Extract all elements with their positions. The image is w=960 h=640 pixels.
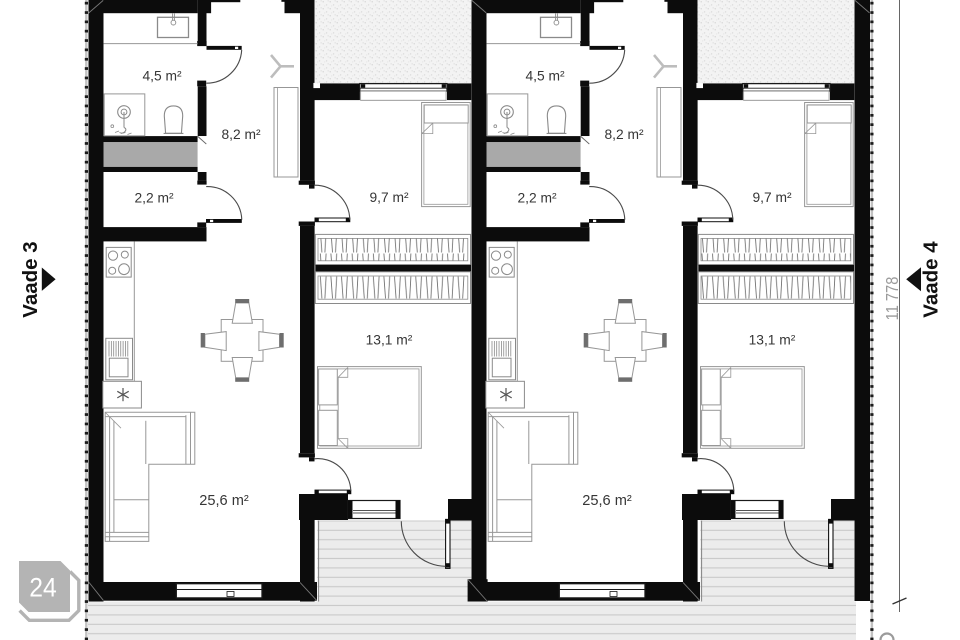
svg-text:Vaade 3: Vaade 3 (19, 241, 42, 317)
svg-text:2,2 m²: 2,2 m² (517, 190, 557, 205)
svg-text:25,6 m²: 25,6 m² (582, 493, 632, 509)
svg-text:8,2 m²: 8,2 m² (604, 127, 644, 142)
svg-text:13,1 m²: 13,1 m² (366, 333, 413, 348)
svg-text:8,2 m²: 8,2 m² (221, 127, 261, 142)
svg-text:25,6 m²: 25,6 m² (199, 493, 249, 509)
svg-text:4,5 m²: 4,5 m² (142, 68, 182, 83)
svg-text:13,1 m²: 13,1 m² (749, 333, 796, 348)
svg-text:9,7 m²: 9,7 m² (752, 190, 792, 205)
svg-text:4,5 m²: 4,5 m² (525, 68, 565, 83)
svg-text:9,7 m²: 9,7 m² (369, 190, 409, 205)
svg-text:Vaade 4: Vaade 4 (920, 241, 943, 318)
svg-text:2,2 m²: 2,2 m² (134, 190, 174, 205)
svg-text:11 778: 11 778 (882, 277, 902, 321)
svg-text:24: 24 (29, 573, 57, 603)
